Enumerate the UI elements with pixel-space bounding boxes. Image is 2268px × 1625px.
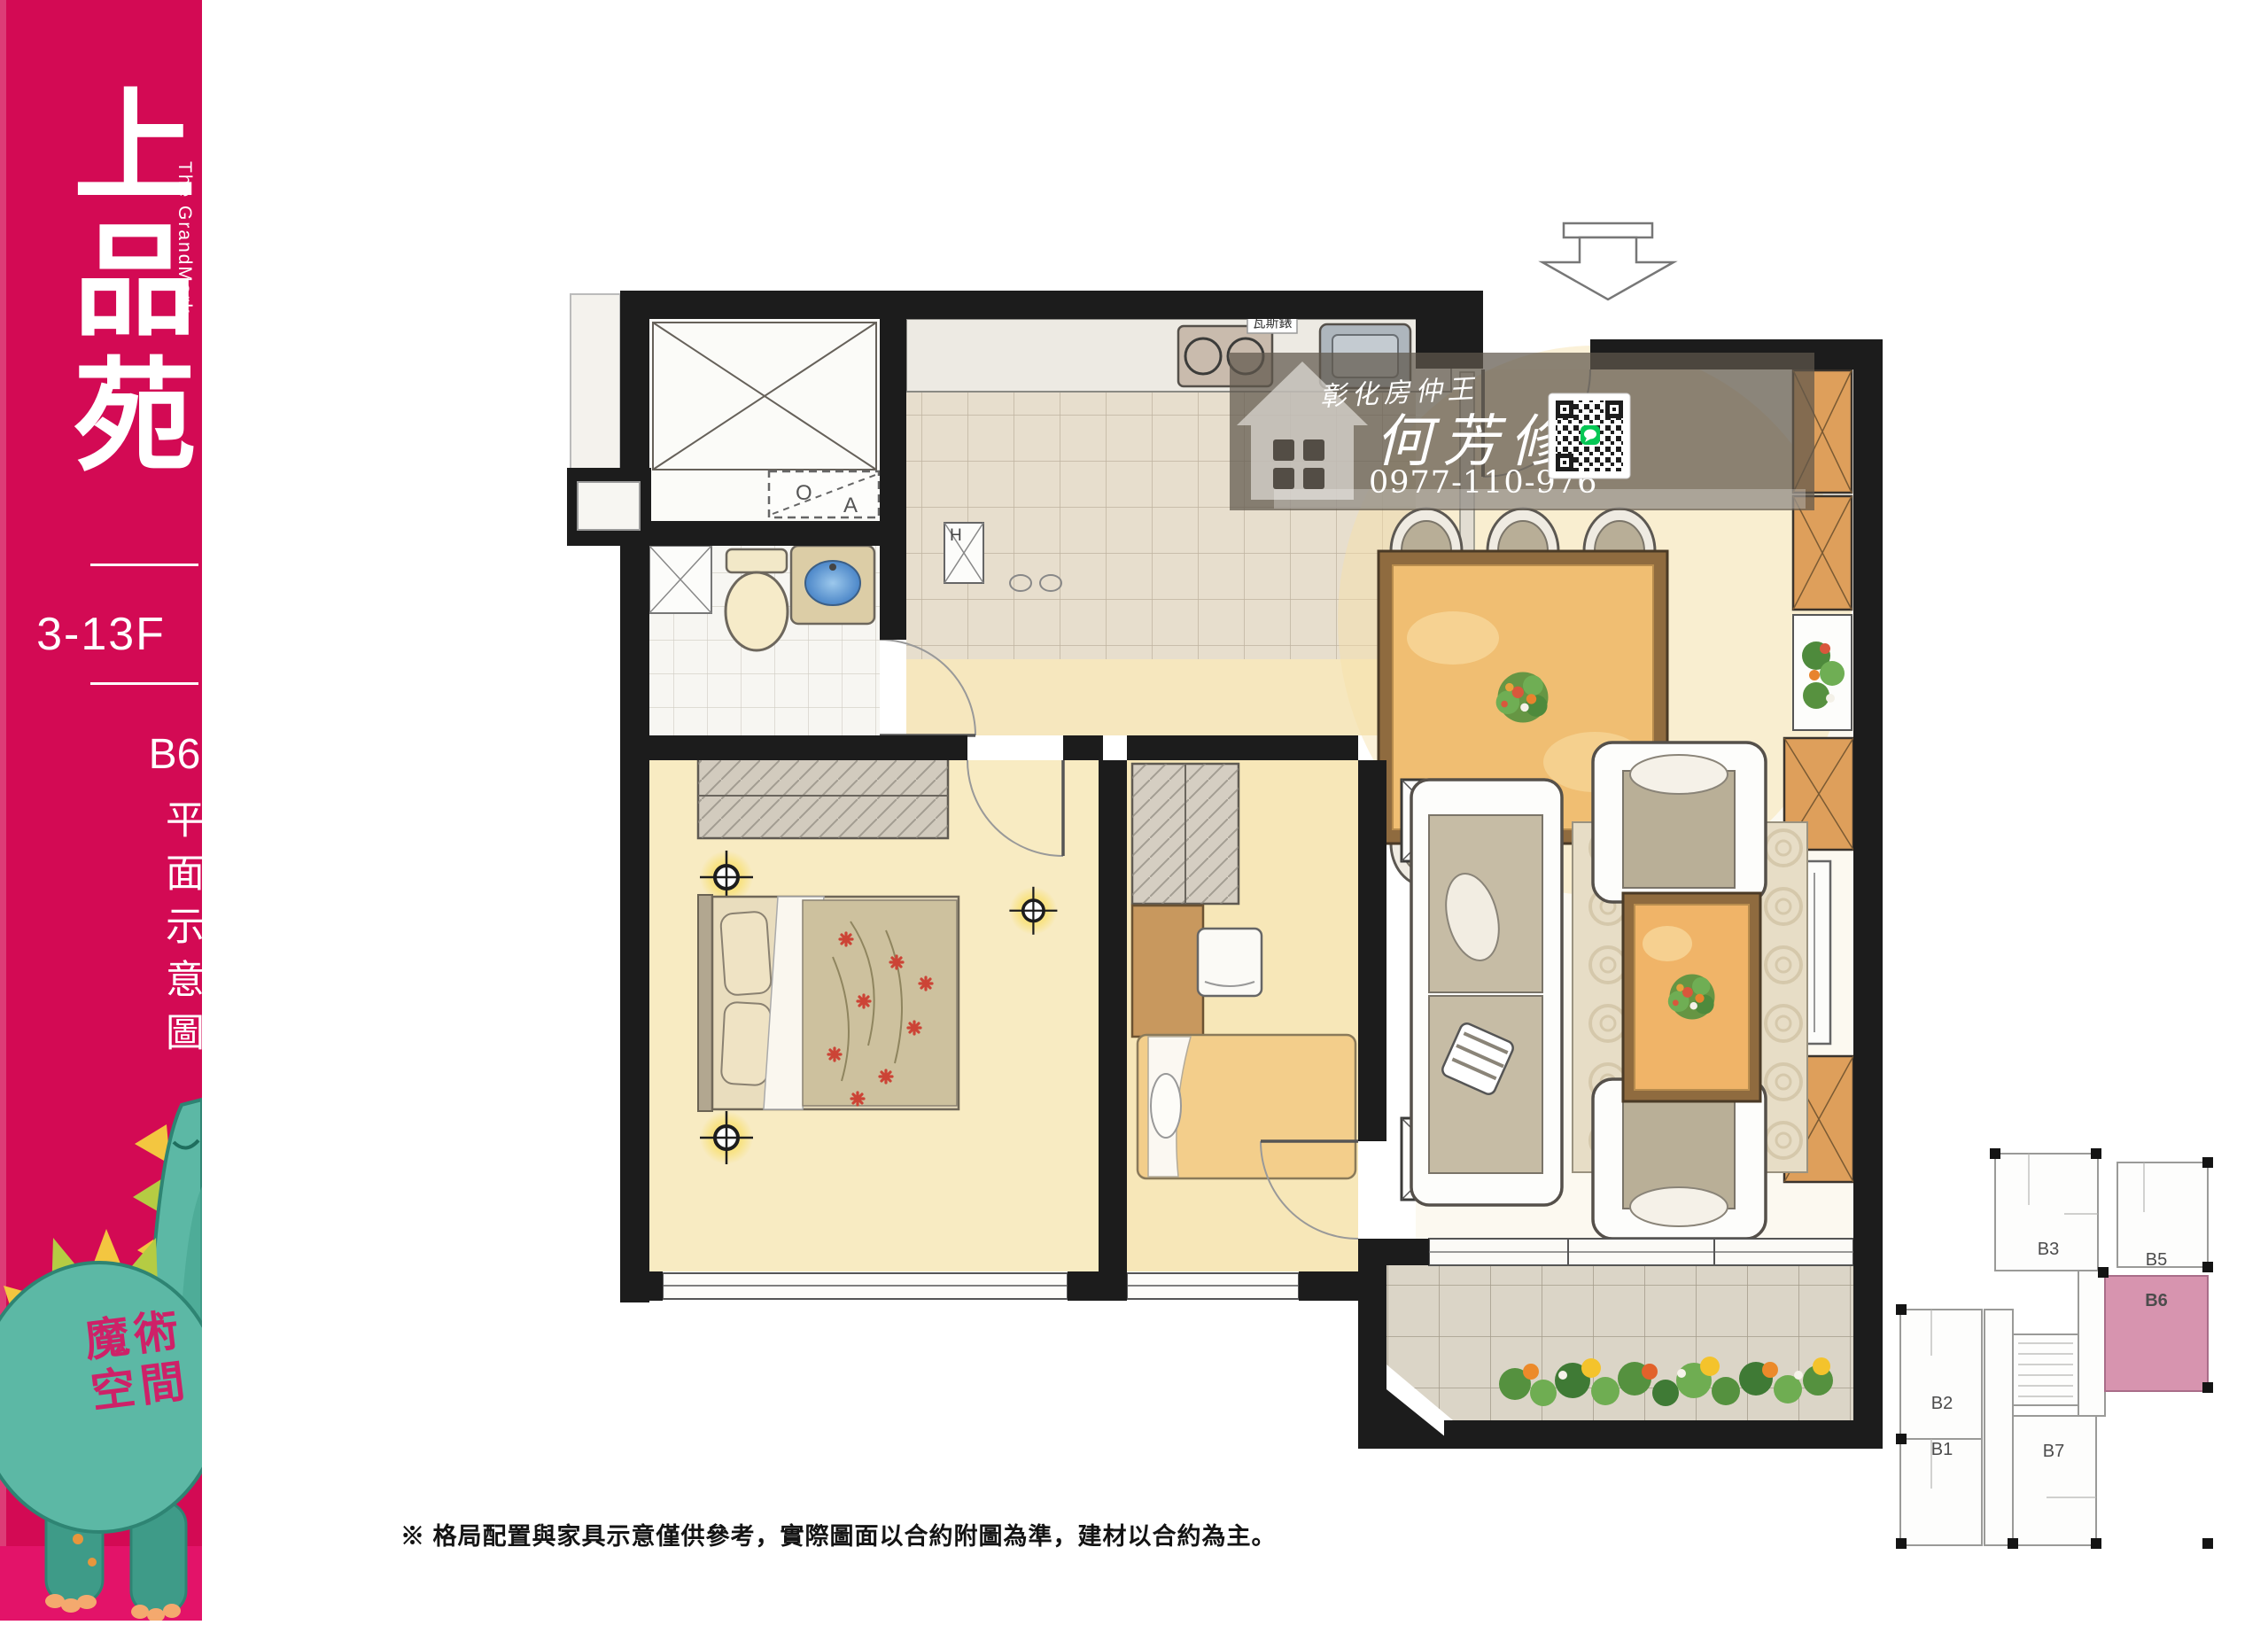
watermark: 彰化房仲王 何芳修 0977-110-976 — [1230, 353, 1814, 510]
sofa — [1411, 780, 1562, 1205]
washer-label-a: A — [843, 494, 858, 517]
wall-window — [578, 482, 640, 530]
key-plan-label-b1: B1 — [1931, 1440, 1953, 1459]
bed2-pillow — [1151, 1074, 1181, 1138]
key-plan-label-b7: B7 — [2043, 1442, 2064, 1461]
desk — [1132, 906, 1203, 1037]
faucet — [829, 564, 836, 571]
armchair-bottom — [1593, 1079, 1766, 1239]
armchair-top — [1593, 743, 1766, 902]
toilet-tank — [726, 549, 787, 572]
duvet — [803, 900, 957, 1106]
key-plan-label-b3: B3 — [2038, 1240, 2059, 1259]
washer-space: O A — [769, 471, 879, 517]
qr-code — [1549, 393, 1630, 478]
entry-arrow — [1542, 223, 1674, 299]
water-heater-label: H — [950, 526, 962, 545]
washer-label-o: O — [796, 481, 812, 505]
pillow — [721, 1002, 772, 1086]
key-plan-core — [2013, 1334, 2078, 1405]
pillow — [720, 911, 772, 995]
key-plan-label-b5: B5 — [2146, 1250, 2167, 1270]
disclaimer-text: ※ 格局配置與家具示意僅供參考，實際圖面以合約附圖為準，建材以合約為主。 — [400, 1517, 1277, 1551]
double-bed — [698, 895, 959, 1111]
headboard — [698, 895, 712, 1111]
single-bed — [1138, 1035, 1355, 1178]
key-plan-label-b6: B6 — [2145, 1291, 2168, 1310]
key-plan: B1 B2 B3 B5 B6 B7 — [1896, 1148, 2213, 1549]
coffee-table — [1623, 893, 1760, 1101]
key-plan-label-b2: B2 — [1931, 1394, 1953, 1413]
hallway-floor — [906, 659, 1386, 735]
bedroom-windows — [663, 1273, 1299, 1299]
bedside-lamp — [700, 1111, 753, 1164]
exterior-column — [571, 294, 620, 494]
storage-closet — [653, 323, 876, 470]
toilet — [726, 572, 788, 650]
floor-plan: O A 瓦斯錶 H — [0, 0, 2268, 1621]
key-plan-unit-b7 — [2013, 1416, 2096, 1545]
living-room — [1402, 743, 1807, 1239]
key-plan-unit-b2 — [1900, 1310, 1982, 1439]
bedroom2-lamp — [1009, 887, 1057, 935]
